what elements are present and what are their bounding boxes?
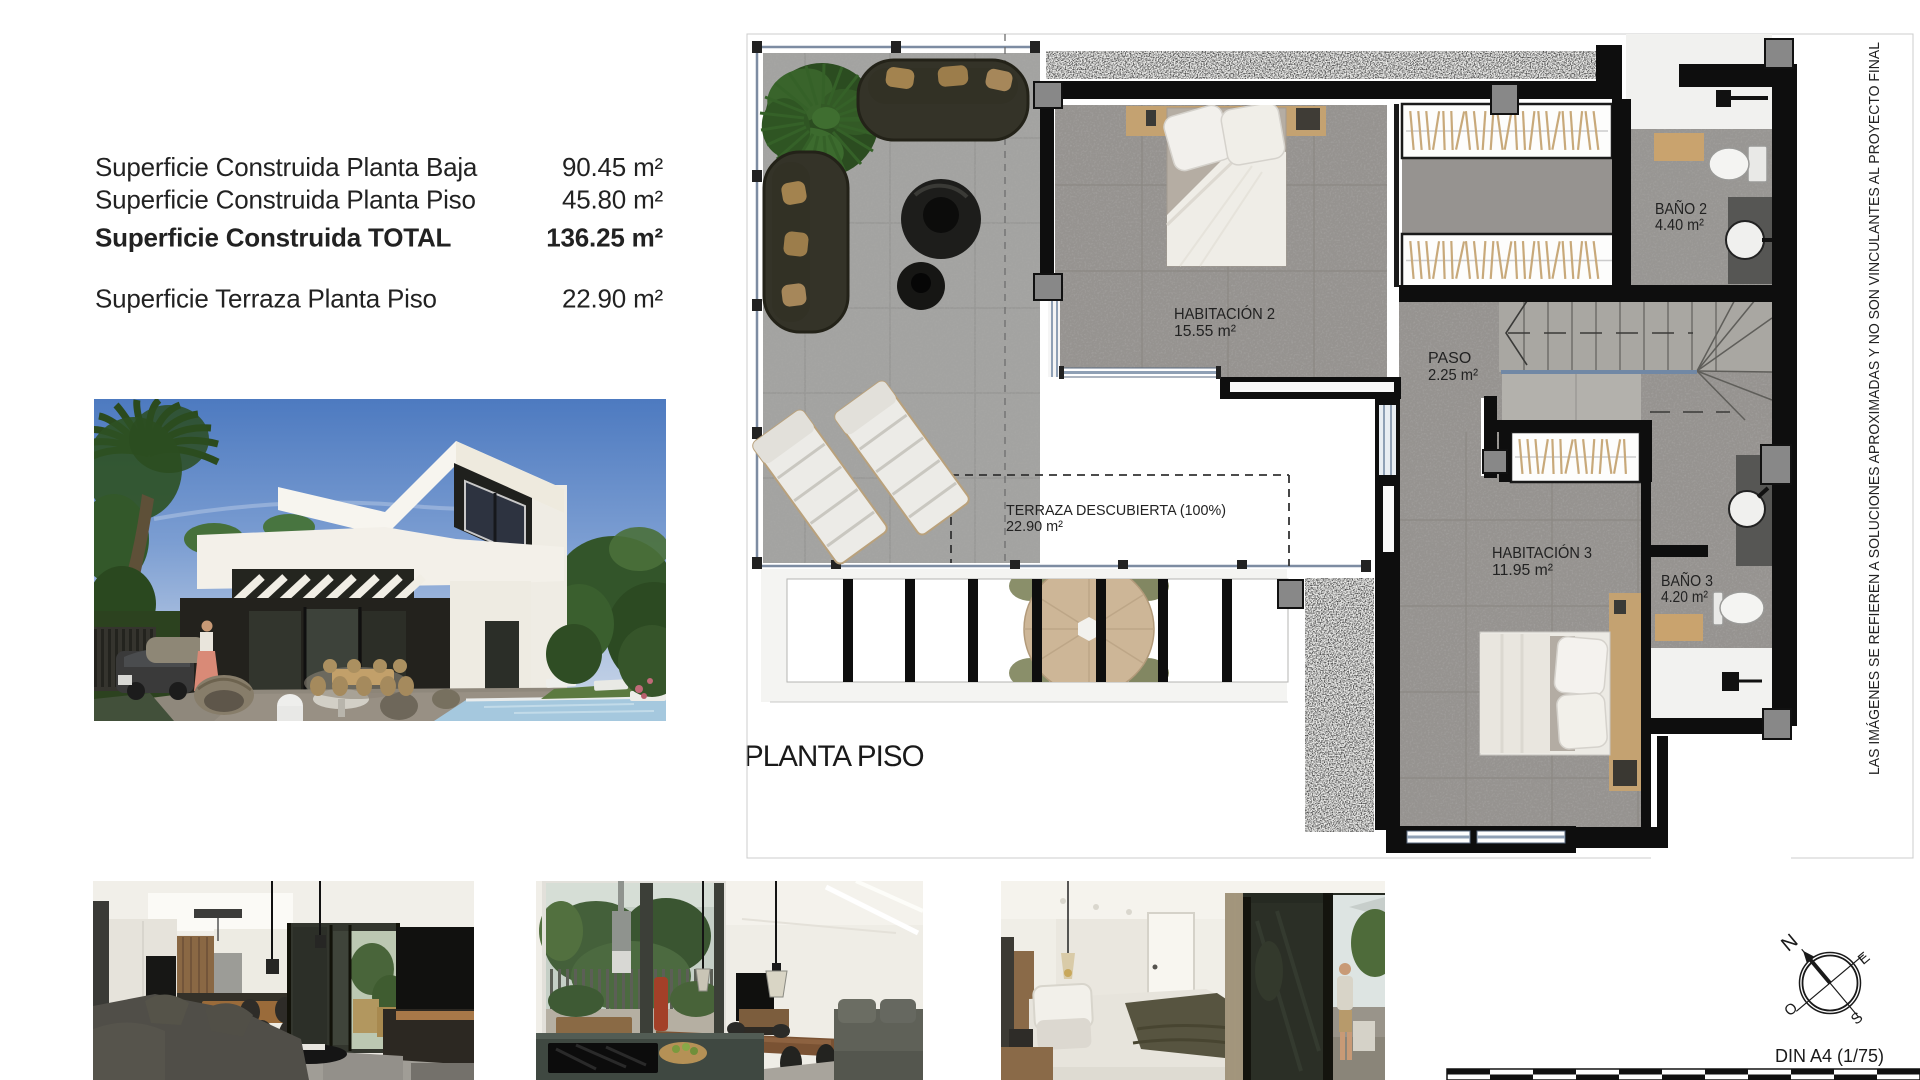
svg-text:PLANTA PISO: PLANTA PISO [744,740,924,773]
svg-text:Superficie Construida TOTAL: Superficie Construida TOTAL [95,223,452,253]
svg-text:15.55 m²: 15.55 m² [1174,323,1237,340]
svg-text:HABITACIÓN 2: HABITACIÓN 2 [1174,304,1275,323]
svg-text:TERRAZA DESCUBIERTA (100%): TERRAZA DESCUBIERTA (100%) [1006,502,1226,519]
svg-text:22.90 m²: 22.90 m² [562,284,664,314]
svg-text:45.80 m²: 45.80 m² [562,185,664,215]
svg-text:Superficie Construida Planta B: Superficie Construida Planta Baja [95,152,478,182]
svg-text:PASO: PASO [1428,350,1471,367]
svg-text:DIN A4 (1/75): DIN A4 (1/75) [1775,1046,1884,1066]
svg-text:90.45 m²: 90.45 m² [562,152,664,182]
svg-text:Superficie Terraza Planta Piso: Superficie Terraza Planta Piso [95,284,437,314]
svg-text:136.25 m²: 136.25 m² [546,223,663,253]
svg-text:Superficie Construida Planta P: Superficie Construida Planta Piso [95,185,476,215]
svg-text:4.40 m²: 4.40 m² [1655,217,1705,234]
svg-text:BAÑO 3: BAÑO 3 [1661,570,1713,590]
svg-text:2.25 m²: 2.25 m² [1428,367,1479,384]
svg-text:4.20 m²: 4.20 m² [1661,589,1709,606]
svg-text:11.95 m²: 11.95 m² [1492,562,1554,579]
svg-text:BAÑO 2: BAÑO 2 [1655,198,1707,218]
svg-text:22.90 m²: 22.90 m² [1006,518,1063,535]
svg-text:LAS IMÁGENES SE REFIEREN A SOL: LAS IMÁGENES SE REFIEREN A SOLUCIONES AP… [1866,42,1883,775]
svg-text:HABITACIÓN 3: HABITACIÓN 3 [1492,543,1592,562]
